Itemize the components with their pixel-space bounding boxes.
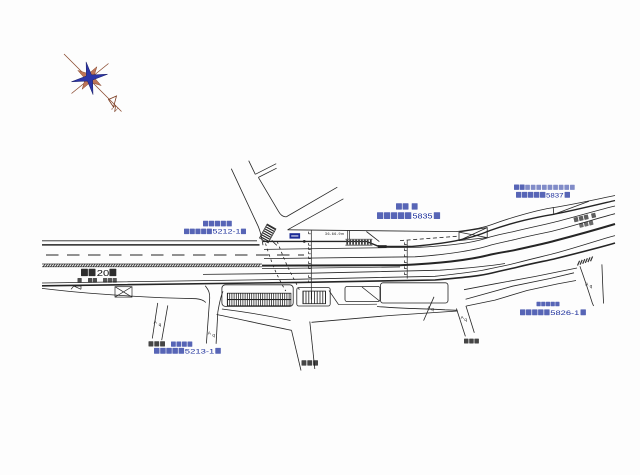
svg-text:5212-1: 5212-1 xyxy=(213,229,242,236)
svg-text:q: q xyxy=(464,317,467,322)
svg-text:5835: 5835 xyxy=(413,214,433,221)
svg-text:q: q xyxy=(159,322,162,327)
svg-text:q: q xyxy=(212,333,215,338)
svg-text:36-66-9m: 36-66-9m xyxy=(325,232,344,236)
svg-text:5826-1: 5826-1 xyxy=(550,310,580,317)
svg-text:5213-1: 5213-1 xyxy=(185,349,215,356)
svg-text:5837: 5837 xyxy=(546,192,564,199)
svg-text:20: 20 xyxy=(97,269,110,278)
svg-text:q: q xyxy=(590,284,593,289)
